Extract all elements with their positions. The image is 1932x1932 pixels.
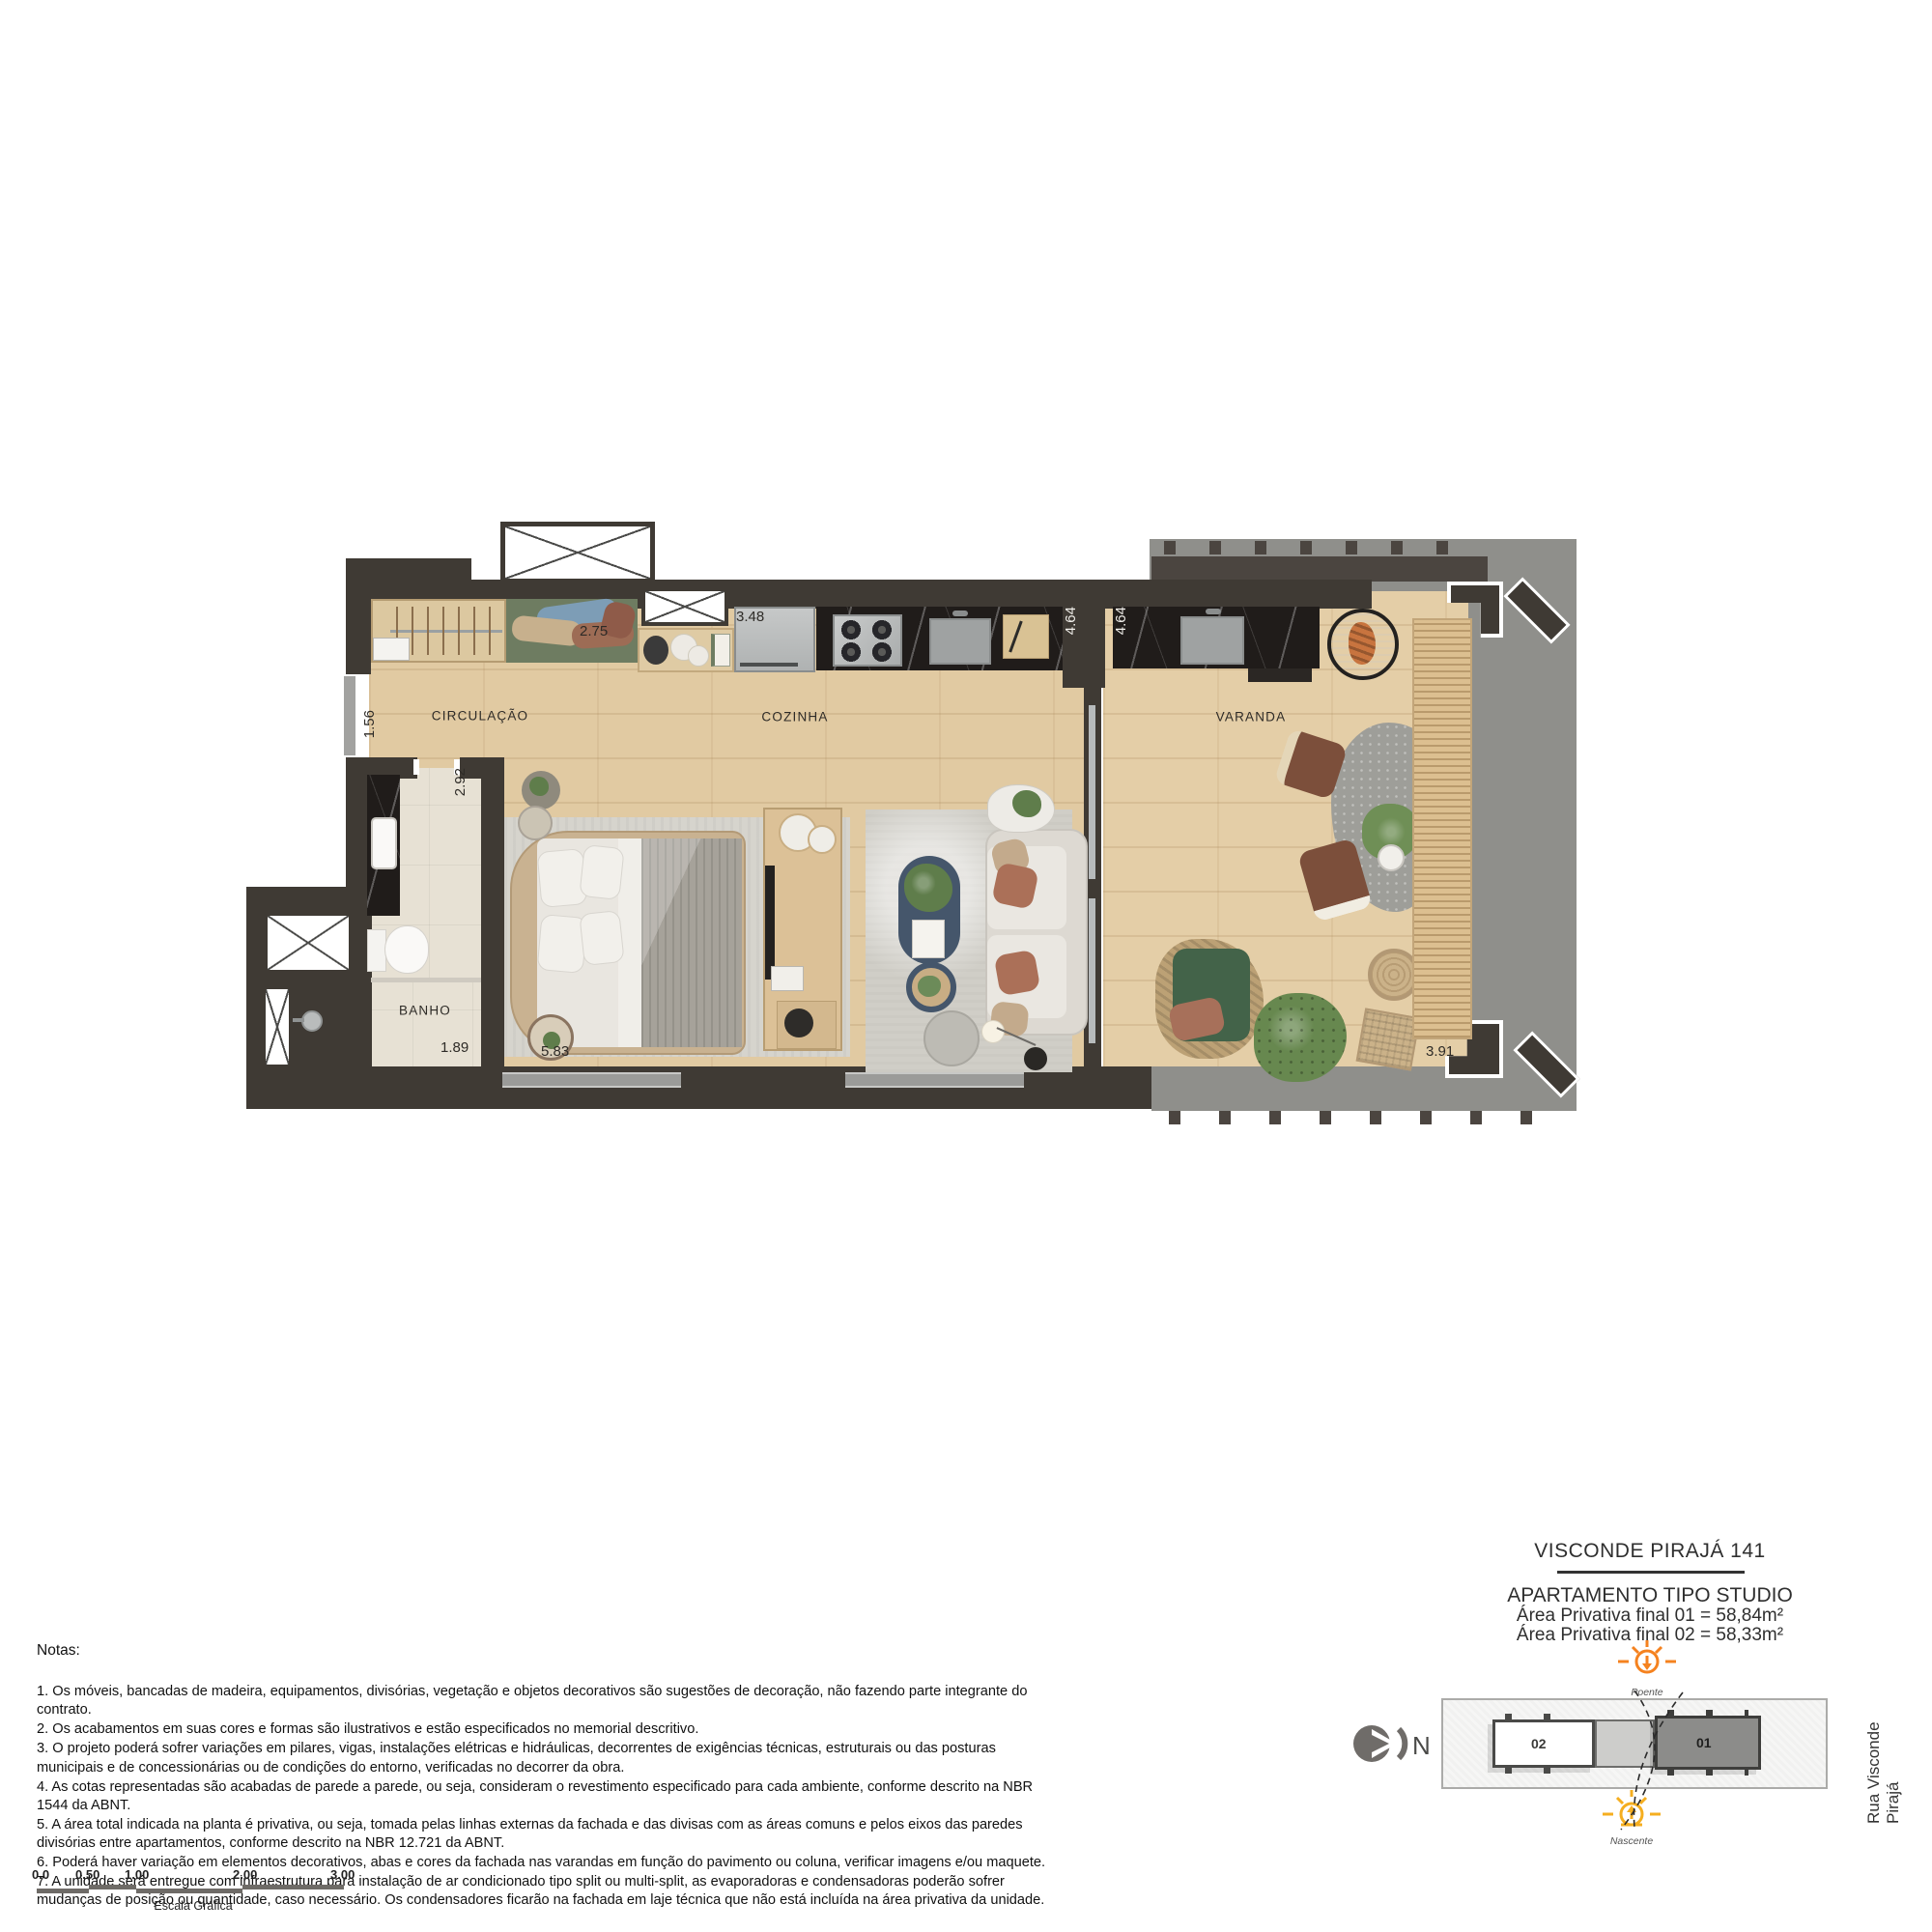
shower-arm xyxy=(293,1018,304,1022)
scale-segment xyxy=(242,1885,344,1889)
pergola-stud xyxy=(1300,541,1312,554)
plate xyxy=(688,645,709,667)
console-box xyxy=(771,966,804,991)
dim-bedroom: 5.83 xyxy=(541,1043,569,1060)
slab-stud-bottom xyxy=(1320,1111,1331,1124)
note-item: 1. Os móveis, bancadas de madeira, equip… xyxy=(37,1683,1057,1720)
dim-kitchen-depth: 4.64 xyxy=(1063,607,1079,635)
desk-chair xyxy=(784,1009,813,1037)
north-label: N xyxy=(1412,1731,1431,1761)
shower-head xyxy=(301,1010,323,1032)
toilet-bowl xyxy=(384,925,429,974)
slab-stud-bottom xyxy=(1520,1111,1532,1124)
scale-segment xyxy=(37,1889,89,1893)
scale-tick: 2.00 xyxy=(233,1867,257,1882)
glass-panel xyxy=(1089,705,1095,879)
varanda-sink xyxy=(1180,616,1244,665)
shaft-hatch xyxy=(500,522,655,583)
slab-stud-bottom xyxy=(1470,1111,1482,1124)
room-label-banho: BANHO xyxy=(399,1004,451,1018)
notes-body: 1. Os móveis, bancadas de madeira, equip… xyxy=(37,1683,1057,1911)
scale-caption: Escala Gráfica xyxy=(116,1899,270,1913)
faucet xyxy=(1206,609,1221,614)
unit-type: APARTAMENTO TIPO STUDIO xyxy=(1447,1584,1853,1607)
wall-bath-right xyxy=(481,757,504,1070)
scale-tick: 1.00 xyxy=(125,1867,149,1882)
bath-sink xyxy=(371,817,397,869)
dim-varanda-width: 3.91 xyxy=(1426,1043,1454,1060)
slab-stud-bottom xyxy=(1420,1111,1432,1124)
pergola-beam xyxy=(1151,556,1488,582)
shaft-hatch xyxy=(641,587,728,626)
varanda-drawer xyxy=(1248,668,1312,682)
dim-entry: 1.56 xyxy=(361,710,378,738)
shower-glass xyxy=(371,978,481,982)
note-item: 6. Poderá haver variação em elementos de… xyxy=(37,1854,1057,1872)
rattan-pouf-cube xyxy=(1356,1008,1421,1070)
poente-sun-icon xyxy=(1615,1636,1679,1687)
slab-stud-bottom xyxy=(1219,1111,1231,1124)
slab-stud-bottom xyxy=(1370,1111,1381,1124)
pergola-stud xyxy=(1346,541,1357,554)
bed-pillow xyxy=(579,844,624,900)
project-title: VISCONDE PIRAJÁ 141 xyxy=(1447,1540,1853,1563)
door-jamb xyxy=(413,759,419,775)
bbq-food xyxy=(1349,622,1376,665)
closet-hanger xyxy=(427,607,429,655)
deck-bench xyxy=(1412,618,1472,1039)
closet-rail xyxy=(390,630,502,633)
slab-stud-bottom xyxy=(1169,1111,1180,1124)
sofa-pillow xyxy=(994,950,1041,997)
dim-varanda-depth: 4.64 xyxy=(1113,607,1129,635)
floor-lamp-shade xyxy=(981,1020,1005,1043)
pergola-stud xyxy=(1164,541,1176,554)
room-label-circulacao: CIRCULAÇÃO xyxy=(432,709,529,724)
note-item: 2. Os acabamentos em suas cores e formas… xyxy=(37,1720,1057,1739)
dim-shelf: 2.75 xyxy=(580,623,608,639)
wall-left-top xyxy=(346,558,371,674)
closet-drawers xyxy=(373,638,410,661)
title-rule xyxy=(1557,1571,1745,1574)
bed-blanket xyxy=(641,838,742,1047)
entry-door xyxy=(342,674,357,757)
floorplan-sheet: CIRCULAÇÃO COZINHA VARANDA BANHO 2.75 3.… xyxy=(0,0,1932,1932)
dim-shower: 1.89 xyxy=(440,1039,469,1056)
sofa-side-plant xyxy=(1012,790,1041,817)
nightstand-tray xyxy=(518,806,553,840)
cooktop xyxy=(833,614,902,667)
pergola-stud xyxy=(1255,541,1266,554)
pouf xyxy=(923,1010,980,1066)
pergola-stud xyxy=(1436,541,1448,554)
room-label-cozinha: COZINHA xyxy=(761,710,828,724)
coffee-machine xyxy=(643,636,668,665)
cookbook xyxy=(711,634,730,667)
scale-tick: 3.00 xyxy=(330,1867,355,1882)
pergola-stud xyxy=(1209,541,1221,554)
coffee-table-plant xyxy=(904,864,952,912)
slab-stud-bottom xyxy=(1269,1111,1281,1124)
kitchen-sink xyxy=(929,618,991,665)
fridge-handle xyxy=(740,663,798,667)
north-icon xyxy=(1350,1721,1408,1766)
room-label-varanda: VARANDA xyxy=(1216,710,1287,724)
area-final-01: Área Privativa final 01 = 58,84m² xyxy=(1447,1605,1853,1627)
unit-teeth xyxy=(1505,1765,1582,1774)
faucet xyxy=(952,611,968,616)
dim-counter: 3.48 xyxy=(736,609,764,625)
table-pot xyxy=(1378,844,1405,871)
pergola-stud xyxy=(1391,541,1403,554)
window-sill xyxy=(502,1072,681,1088)
note-item: 5. A área total indicada na planta é pri… xyxy=(37,1816,1057,1854)
closet-hanger xyxy=(458,607,460,655)
coffee-table-book xyxy=(912,920,945,958)
nightstand-plant xyxy=(529,777,549,796)
dim-bath-width: 2.92 xyxy=(452,768,469,796)
street-label: Rua Visconde Pirajá xyxy=(1864,1689,1903,1824)
bed-pillow xyxy=(579,910,624,966)
note-item: 3. O projeto poderá sofrer variações em … xyxy=(37,1740,1057,1777)
closet-hanger xyxy=(489,607,491,655)
window-sill xyxy=(845,1072,1024,1088)
unit-02-label: 02 xyxy=(1531,1736,1547,1751)
closet-hanger xyxy=(412,607,413,655)
shaft-hatch xyxy=(264,912,353,974)
toilet-tank xyxy=(367,929,386,972)
scale-segment xyxy=(136,1889,242,1893)
unit-teeth xyxy=(1505,1714,1582,1722)
scale-tick: 0.0 xyxy=(32,1867,49,1882)
tv xyxy=(765,866,775,980)
floor-lamp-base xyxy=(1024,1047,1047,1070)
shaft-hatch xyxy=(262,985,293,1068)
notes-heading: Notas: xyxy=(37,1642,80,1660)
scale-segment xyxy=(89,1885,136,1889)
sun-path-arcs xyxy=(1575,1683,1768,1837)
note-item: 4. As cotas representadas são acabadas d… xyxy=(37,1778,1057,1816)
console-tray xyxy=(808,825,837,854)
scale-tick: 0.50 xyxy=(75,1867,99,1882)
wall-varanda-top xyxy=(1105,580,1372,609)
glass-panel xyxy=(1089,898,1095,1043)
closet-hanger xyxy=(442,607,444,655)
closet-hanger xyxy=(473,607,475,655)
